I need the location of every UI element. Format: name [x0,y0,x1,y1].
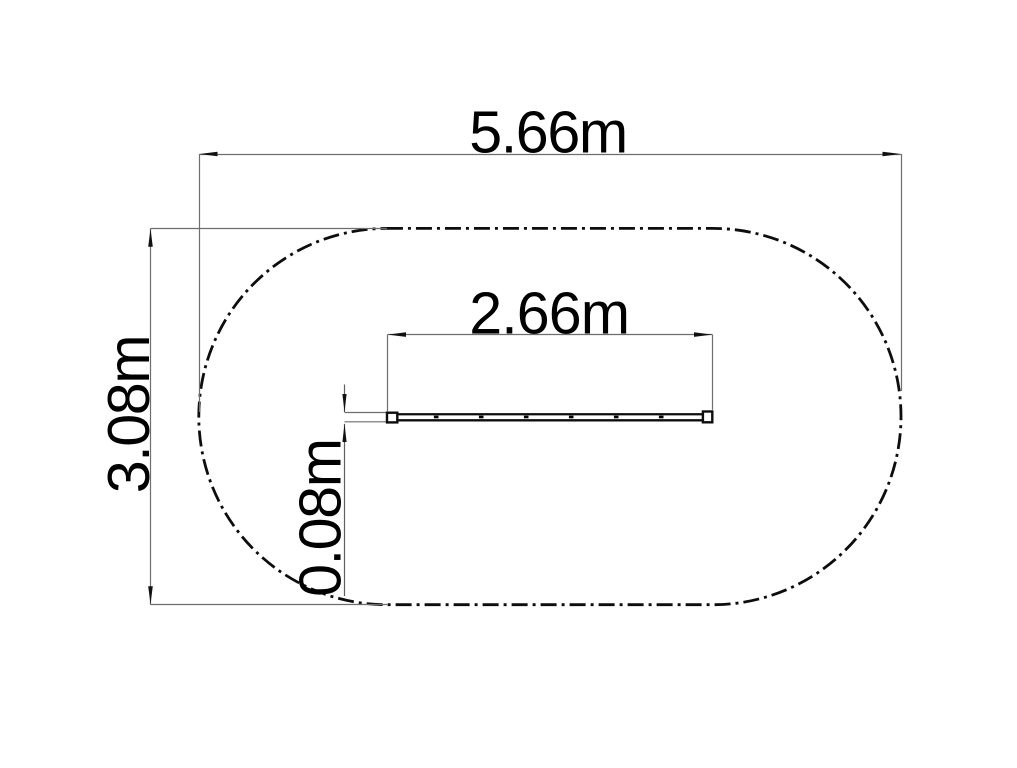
svg-text:5.66m: 5.66m [469,98,627,165]
svg-text:3.08m: 3.08m [95,336,162,494]
svg-text:2.66m: 2.66m [469,280,629,347]
svg-text:0.08m: 0.08m [287,439,354,597]
